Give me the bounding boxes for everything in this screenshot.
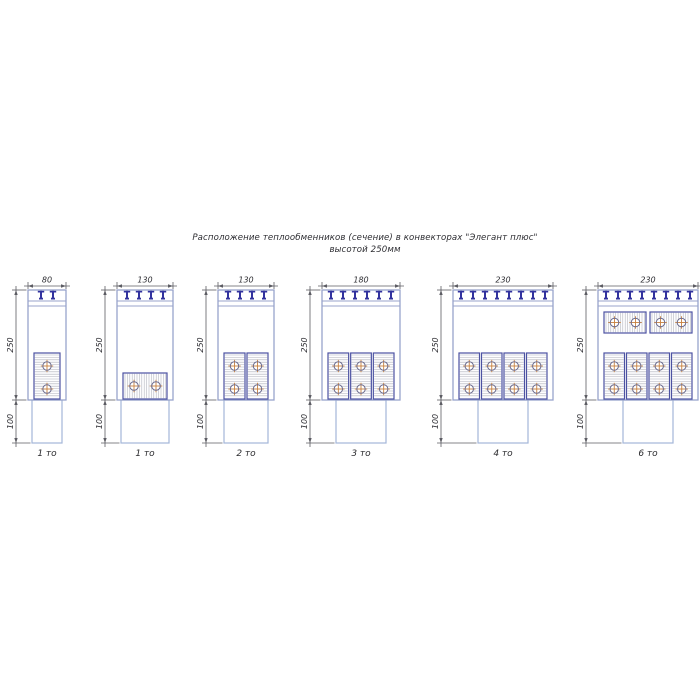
heat-exchanger-block	[650, 312, 692, 333]
clip-foot	[149, 298, 153, 300]
height-dimensions: 250100	[6, 286, 31, 447]
height-dim-label-100: 100	[431, 414, 440, 429]
diagram-caption: 4 то	[493, 449, 513, 459]
dim-arrow	[103, 400, 106, 405]
dim-arrow	[61, 284, 66, 287]
clip-foot	[365, 298, 369, 300]
clip-foot	[676, 298, 680, 300]
height-dim-label-250: 250	[431, 337, 440, 352]
width-dim-label: 130	[137, 276, 152, 285]
convector-diagram-conv-180-3to: 1802501003 то	[300, 276, 404, 460]
clip-foot	[507, 298, 511, 300]
width-dimension: 130	[113, 276, 177, 290]
width-dimension: 230	[594, 276, 700, 290]
clip-foot	[664, 298, 668, 300]
dim-arrow	[269, 284, 274, 287]
clip-foot	[238, 298, 242, 300]
clip-foot	[531, 298, 535, 300]
clip-foot	[640, 298, 644, 300]
height-dimensions: 250100	[95, 286, 120, 447]
clip-foot	[377, 298, 381, 300]
dim-arrow	[439, 395, 442, 400]
dim-arrow	[204, 395, 207, 400]
dim-arrow	[28, 284, 33, 287]
convector-diagram-conv-230-4to: 2302501004 то	[431, 276, 557, 460]
dim-arrow	[103, 290, 106, 295]
dim-arrow	[439, 400, 442, 405]
heat-exchanger-block	[672, 353, 693, 399]
height-dim-label-250: 250	[576, 337, 585, 352]
dim-arrow	[584, 395, 587, 400]
convector-diagram-conv-130-1to: 1302501001 то	[95, 276, 177, 460]
dim-arrow	[308, 400, 311, 405]
clip-foot	[39, 298, 43, 300]
lower-duct	[121, 400, 169, 443]
width-dimension: 130	[214, 276, 278, 290]
diagram-caption: 1 то	[135, 449, 155, 459]
heat-exchanger-block	[482, 353, 503, 399]
diagram-caption: 6 то	[638, 449, 658, 459]
drawing-page: Расположение теплообменников (сечение) в…	[0, 0, 700, 700]
dim-arrow	[453, 284, 458, 287]
clip-foot	[459, 298, 463, 300]
clip-foot	[389, 298, 393, 300]
diagram-caption: 1 то	[37, 449, 57, 459]
heat-exchanger-block	[604, 312, 646, 333]
diagram-caption: 2 то	[236, 449, 256, 459]
dim-arrow	[693, 284, 698, 287]
clip-foot	[341, 298, 345, 300]
clip-foot	[519, 298, 523, 300]
height-dim-label-100: 100	[95, 414, 104, 429]
height-dim-label-100: 100	[6, 414, 15, 429]
convector-diagrams-canvas: 802501001 то1302501001 то1302501002 то18…	[0, 0, 700, 700]
dim-arrow	[204, 290, 207, 295]
clip-foot	[628, 298, 632, 300]
lower-duct	[623, 400, 673, 443]
width-dimension: 180	[318, 276, 404, 290]
clip-foot	[652, 298, 656, 300]
clip-foot	[483, 298, 487, 300]
width-dimension: 80	[24, 276, 70, 290]
clip-foot	[353, 298, 357, 300]
dim-arrow	[322, 284, 327, 287]
height-dim-label-100: 100	[196, 414, 205, 429]
clip-foot	[495, 298, 499, 300]
clip-foot	[616, 298, 620, 300]
dim-arrow	[204, 438, 207, 443]
clip-foot	[688, 298, 692, 300]
height-dim-label-250: 250	[196, 337, 205, 352]
width-dim-label: 130	[238, 276, 253, 285]
clip-foot	[161, 298, 165, 300]
lower-duct	[478, 400, 528, 443]
dim-arrow	[168, 284, 173, 287]
dim-arrow	[308, 438, 311, 443]
heat-exchanger-block	[247, 353, 268, 399]
clip-foot	[329, 298, 333, 300]
convector-diagram-conv-130-2to: 1302501002 то	[196, 276, 278, 460]
dim-arrow	[584, 400, 587, 405]
heat-exchanger-block	[34, 353, 60, 399]
dim-arrow	[548, 284, 553, 287]
heat-exchanger-block	[527, 353, 548, 399]
height-dim-label-100: 100	[576, 414, 585, 429]
lower-duct	[224, 400, 268, 443]
dim-arrow	[584, 438, 587, 443]
clip-foot	[543, 298, 547, 300]
dim-arrow	[218, 284, 223, 287]
dim-arrow	[439, 438, 442, 443]
clip-foot	[262, 298, 266, 300]
clip-foot	[250, 298, 254, 300]
heat-exchanger-block	[604, 353, 625, 399]
height-dim-label-100: 100	[300, 414, 309, 429]
width-dim-label: 230	[495, 276, 510, 285]
convector-diagram-conv-80-1to: 802501001 то	[6, 276, 70, 460]
heat-exchanger-block	[459, 353, 480, 399]
width-dim-label: 80	[42, 276, 52, 285]
diagram-caption: 3 то	[351, 449, 371, 459]
dim-arrow	[14, 438, 17, 443]
clip-foot	[51, 298, 55, 300]
dim-arrow	[14, 290, 17, 295]
clip-foot	[604, 298, 608, 300]
convector-diagram-conv-230-6to: 2302501006 то	[576, 276, 700, 460]
lower-duct	[336, 400, 386, 443]
dim-arrow	[14, 400, 17, 405]
heat-exchanger-block	[224, 353, 245, 399]
dim-arrow	[598, 284, 603, 287]
clip-foot	[226, 298, 230, 300]
clip-foot	[137, 298, 141, 300]
dim-arrow	[204, 400, 207, 405]
width-dim-label: 230	[640, 276, 655, 285]
dim-arrow	[103, 438, 106, 443]
dim-arrow	[14, 395, 17, 400]
dim-arrow	[117, 284, 122, 287]
height-dim-label-250: 250	[95, 337, 104, 352]
height-dim-label-250: 250	[300, 337, 309, 352]
dim-arrow	[308, 395, 311, 400]
dim-arrow	[439, 290, 442, 295]
dim-arrow	[395, 284, 400, 287]
height-dim-label-250: 250	[6, 337, 15, 352]
width-dimension: 230	[449, 276, 557, 290]
width-dim-label: 180	[353, 276, 368, 285]
heat-exchanger-block	[627, 353, 648, 399]
heat-exchanger-block	[351, 353, 372, 399]
clip-foot	[125, 298, 129, 300]
heat-exchanger-block	[123, 373, 167, 399]
clip-foot	[471, 298, 475, 300]
heat-exchanger-block	[328, 353, 349, 399]
dim-arrow	[103, 395, 106, 400]
heat-exchanger-block	[649, 353, 670, 399]
heat-exchanger-block	[373, 353, 394, 399]
dim-arrow	[584, 290, 587, 295]
dim-arrow	[308, 290, 311, 295]
heat-exchanger-block	[504, 353, 525, 399]
lower-duct	[32, 400, 62, 443]
